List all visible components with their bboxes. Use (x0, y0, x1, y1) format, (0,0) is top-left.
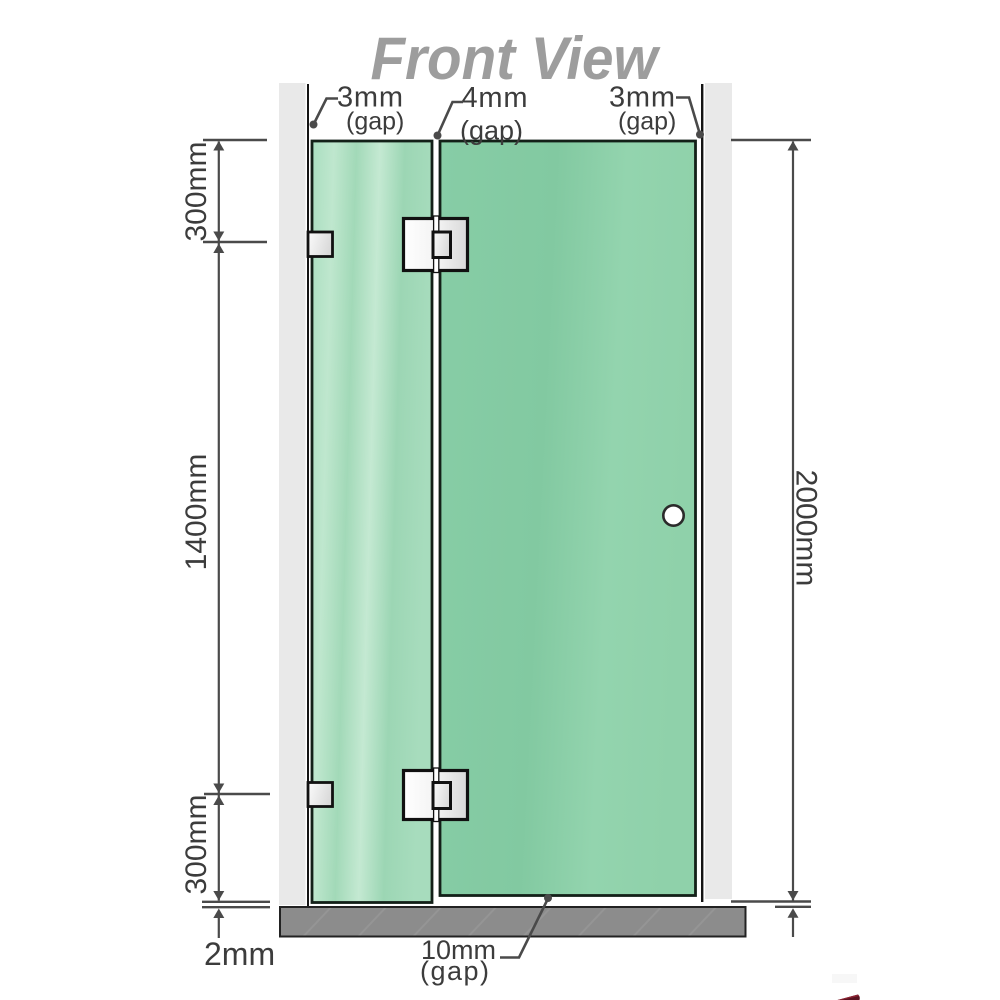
svg-text:2mm: 2mm (204, 936, 275, 972)
svg-text:(gap): (gap) (460, 116, 523, 146)
svg-text:2000mm: 2000mm (790, 470, 823, 587)
svg-text:(gap): (gap) (618, 108, 676, 136)
svg-text:300mm: 300mm (180, 794, 213, 894)
svg-text:(gap): (gap) (420, 956, 491, 986)
svg-text:4mm: 4mm (462, 82, 529, 114)
svg-text:300mm: 300mm (180, 141, 213, 241)
svg-text:1400mm: 1400mm (180, 454, 213, 571)
svg-text:(gap): (gap) (346, 108, 404, 136)
